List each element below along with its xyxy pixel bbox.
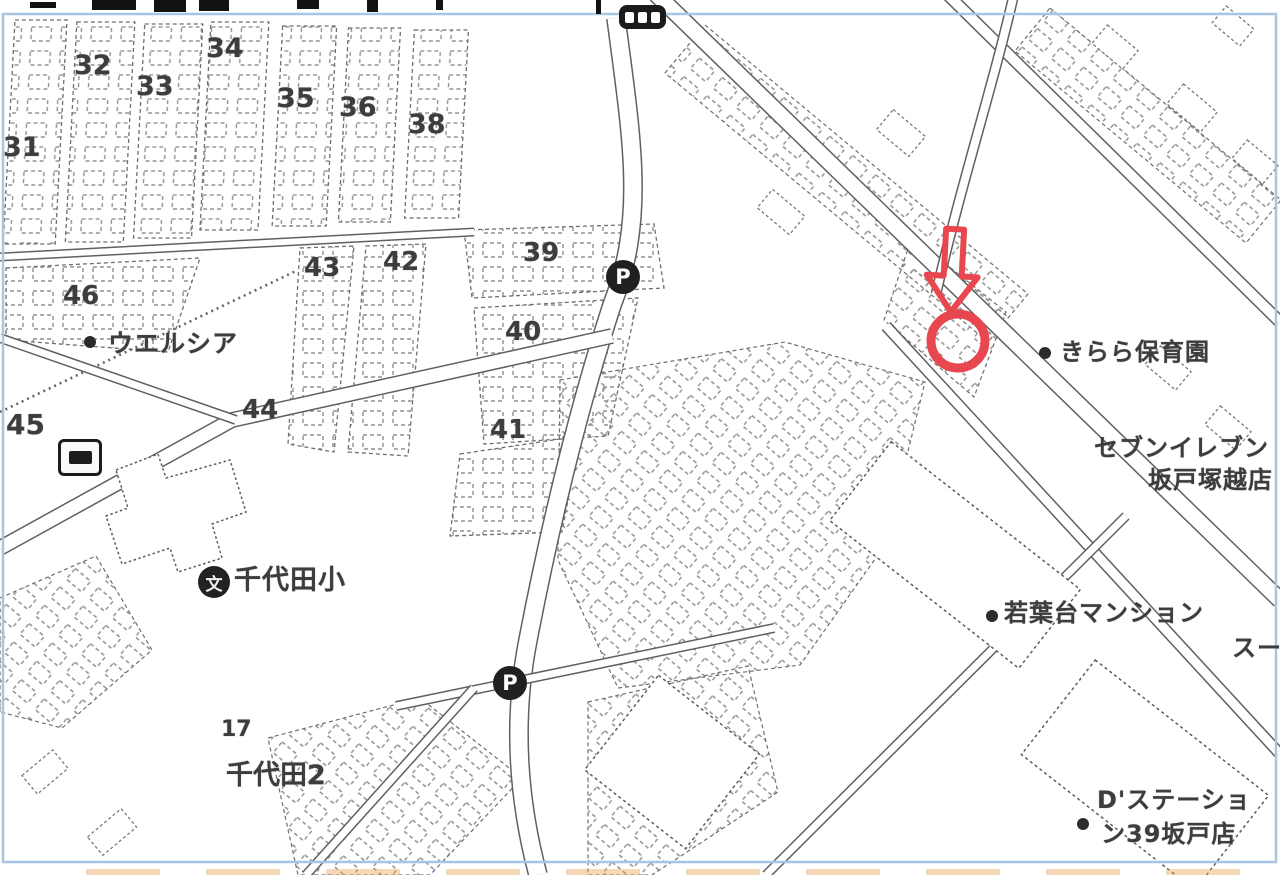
block-42: 42 bbox=[383, 249, 419, 275]
school-building-outline bbox=[106, 454, 246, 572]
block-33: 33 bbox=[136, 73, 174, 100]
block-31: 31 bbox=[3, 134, 41, 161]
block-35: 35 bbox=[277, 85, 315, 112]
poi-d-station-line2: ン39坂戸店 bbox=[1101, 822, 1236, 846]
block-40: 40 bbox=[505, 319, 541, 345]
block-41: 41 bbox=[490, 417, 526, 443]
bullet-welcia bbox=[84, 336, 96, 348]
poi-wakabadai-mansion: 若葉台マンション bbox=[1004, 601, 1204, 625]
parking-icon-south: P bbox=[493, 666, 527, 700]
bus-stop-icon-west bbox=[58, 439, 102, 476]
block-39: 39 bbox=[523, 240, 559, 266]
bullet-kirara-nursery bbox=[1039, 347, 1051, 359]
block-44: 44 bbox=[242, 397, 278, 423]
poi-seven-eleven-line1: セブンイレブン bbox=[1094, 436, 1269, 460]
block-46: 46 bbox=[63, 283, 99, 309]
map-line-art bbox=[0, 0, 1280, 875]
poi-seven-eleven-line2: 坂戸塚越店 bbox=[1148, 468, 1273, 492]
district-chiyoda-2: 千代田2 bbox=[226, 762, 326, 789]
school-icon: 文 bbox=[198, 566, 230, 598]
block-38: 38 bbox=[408, 111, 446, 138]
bullet-d-station bbox=[1077, 818, 1089, 830]
block-43: 43 bbox=[304, 255, 340, 281]
poi-kirara-nursery: きらら保育園 bbox=[1060, 340, 1210, 364]
scan-artifact-strip bbox=[40, 869, 1240, 875]
block-17: 17 bbox=[221, 719, 252, 741]
poi-super-cutoff: スー bbox=[1232, 636, 1280, 660]
block-36: 36 bbox=[339, 94, 377, 121]
bullet-wakabadai-mansion bbox=[986, 610, 998, 622]
bus-stop-icon-top bbox=[619, 5, 666, 29]
poi-welcia: ウエルシア bbox=[108, 331, 238, 356]
block-45: 45 bbox=[6, 411, 45, 439]
scanned-map-image: 31323334353638394041424344454617千代田2ウエルシ… bbox=[0, 0, 1280, 875]
block-34: 34 bbox=[206, 35, 244, 62]
poi-d-station-line1: D'ステーショ bbox=[1097, 788, 1251, 812]
poi-chiyoda-elementary: 千代田小 bbox=[234, 567, 346, 594]
parking-icon-north: P bbox=[606, 260, 640, 294]
block-32: 32 bbox=[74, 52, 112, 79]
